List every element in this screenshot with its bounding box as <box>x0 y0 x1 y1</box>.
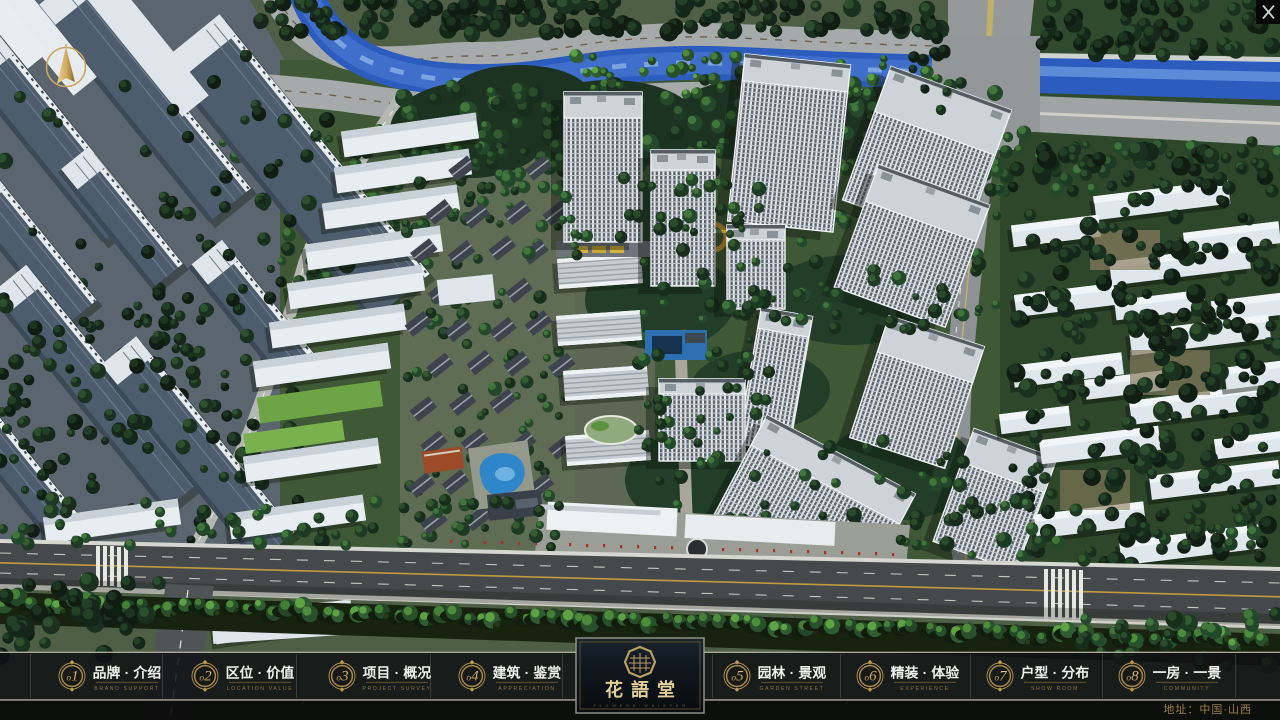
svg-text:品牌 · 介绍: 品牌 · 介绍 <box>93 665 162 681</box>
svg-text:APPRECIATION: APPRECIATION <box>498 686 555 692</box>
svg-text:户型 · 分布: 户型 · 分布 <box>1021 665 1090 681</box>
svg-text:SHOW ROOM: SHOW ROOM <box>1031 686 1079 692</box>
svg-text:LOCATION VALUE: LOCATION VALUE <box>227 686 294 692</box>
svg-text:地址：中国·山西: 地址：中国·山西 <box>1163 702 1252 716</box>
svg-text:GARDEN STREET: GARDEN STREET <box>760 686 825 692</box>
svg-text:花語堂: 花語堂 <box>605 679 683 700</box>
svg-text:精装 · 体验: 精装 · 体验 <box>891 665 960 681</box>
svg-text:COMMUNITY: COMMUNITY <box>1164 686 1210 692</box>
svg-text:PROJECT SURVEY: PROJECT SURVEY <box>362 686 431 692</box>
svg-text:园林 · 景观: 园林 · 景观 <box>758 665 827 681</box>
svg-text:BRAND SUPPORT: BRAND SUPPORT <box>94 686 159 692</box>
svg-text:建筑 · 鉴赏: 建筑 · 鉴赏 <box>493 665 562 681</box>
svg-text:EXPERIENCE: EXPERIENCE <box>900 686 949 692</box>
svg-text:F L O W E R S · W H I S P E R: F L O W E R S · W H I S P E R <box>593 704 686 708</box>
svg-text:项目 · 概况: 项目 · 概况 <box>363 665 432 681</box>
svg-text:区位 · 价值: 区位 · 价值 <box>226 665 295 681</box>
svg-text:一房 · 一景: 一房 · 一景 <box>1153 665 1222 681</box>
